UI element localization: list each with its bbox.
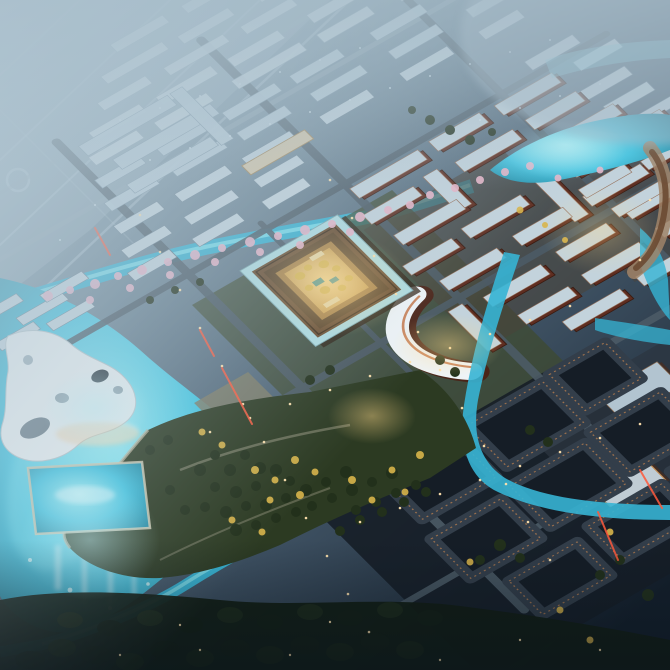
campus-night-render (0, 0, 670, 670)
atmosphere-haze (0, 0, 670, 670)
aerial-render-canvas (0, 0, 670, 670)
